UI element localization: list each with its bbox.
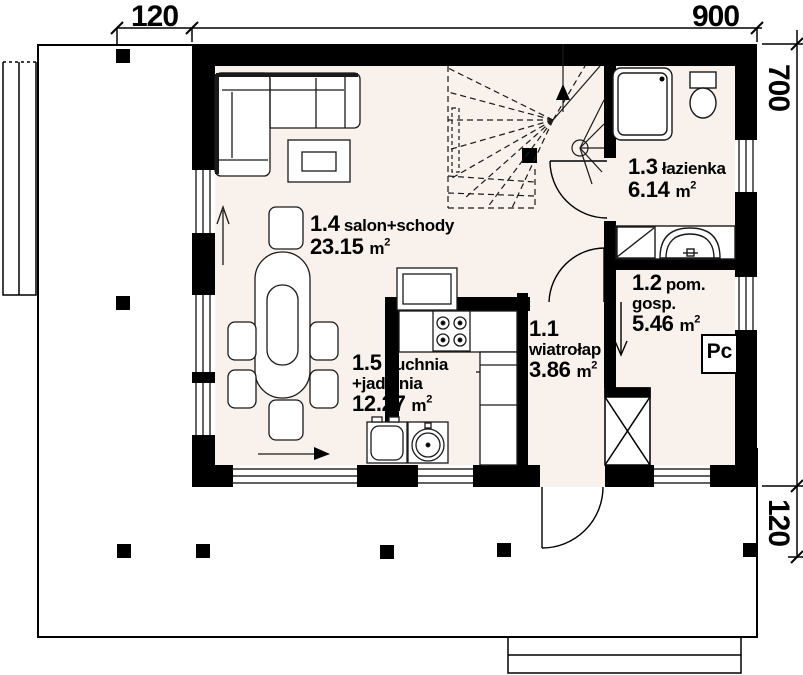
window-icon (654, 465, 710, 487)
washing-machine-icon (367, 417, 407, 463)
boiler-label: Pc (702, 340, 737, 374)
side-ramp (3, 62, 36, 295)
room-number: 1.3 (628, 154, 658, 179)
chair-icon (269, 207, 303, 249)
floor-plan-page: 120 900 700 120 1.4 salon+schody 23.15 m… (0, 0, 803, 675)
sideboard-icon (397, 268, 457, 310)
room-number: 1.1 (529, 318, 601, 341)
dimension-top-porch: 120 (117, 0, 192, 34)
entry-door (540, 465, 605, 548)
floor-plan-drawing (0, 0, 803, 675)
post-icon (380, 545, 394, 559)
kitchen-sink-icon (408, 422, 448, 463)
window-icon (418, 465, 473, 487)
dimension-top-house: 900 (668, 0, 763, 34)
window-icon (233, 465, 357, 487)
window-icon (735, 140, 757, 192)
room-number: 1.4 (310, 211, 340, 236)
dining-table-icon (255, 252, 310, 398)
post-icon (116, 296, 130, 310)
chimney-shaft-icon (605, 388, 650, 465)
room-area: 23.15 (310, 234, 364, 259)
room-area: 3.86 (529, 357, 571, 382)
stove-icon (433, 311, 470, 351)
window-icon (735, 277, 757, 330)
dimension-right-house: 700 (761, 48, 795, 128)
post-icon (196, 544, 210, 558)
room-name: pom. (666, 275, 705, 294)
toilet-icon (690, 72, 716, 118)
room-number: 1.2 (632, 270, 662, 295)
chair-icon (269, 400, 303, 440)
vanity-counter (616, 226, 735, 259)
chair-icon (228, 370, 256, 408)
room-number: 1.5 (352, 350, 382, 375)
room-label-bathroom: 1.3 łazienka 6.14 m2 (628, 156, 726, 202)
window-icon (192, 383, 215, 435)
room-name: salon+schody (344, 216, 454, 235)
window-icon (192, 295, 215, 372)
room-label-kitchen: 1.5 kuchnia +jadalnia 12.27 m2 (352, 352, 448, 415)
cabinet-icon (617, 227, 655, 258)
chair-icon (228, 322, 256, 360)
post-icon (743, 543, 757, 557)
room-area: 12.27 (352, 391, 406, 416)
room-name: kuchnia (386, 355, 448, 374)
room-area: 6.14 (628, 177, 670, 202)
window-icon (192, 170, 215, 233)
dimension-right-terrace: 120 (761, 486, 795, 560)
room-label-utility: 1.2 pom. gosp. 5.46 m2 (632, 272, 705, 335)
room-label-salon: 1.4 salon+schody 23.15 m2 (310, 213, 454, 259)
terrace-steps (508, 637, 741, 673)
shower-icon (613, 68, 672, 140)
coffee-table-icon (288, 140, 350, 182)
room-area: 5.46 (632, 311, 674, 336)
chair-icon (310, 322, 338, 360)
chair-icon (310, 370, 338, 408)
room-label-vestibule: 1.1 wiatrołap 3.86 m2 (529, 318, 601, 381)
post-icon (497, 543, 511, 557)
room-name: łazienka (662, 159, 726, 178)
post-icon (117, 544, 131, 558)
kitchen-counter-east (476, 352, 517, 465)
post-icon (116, 49, 130, 63)
